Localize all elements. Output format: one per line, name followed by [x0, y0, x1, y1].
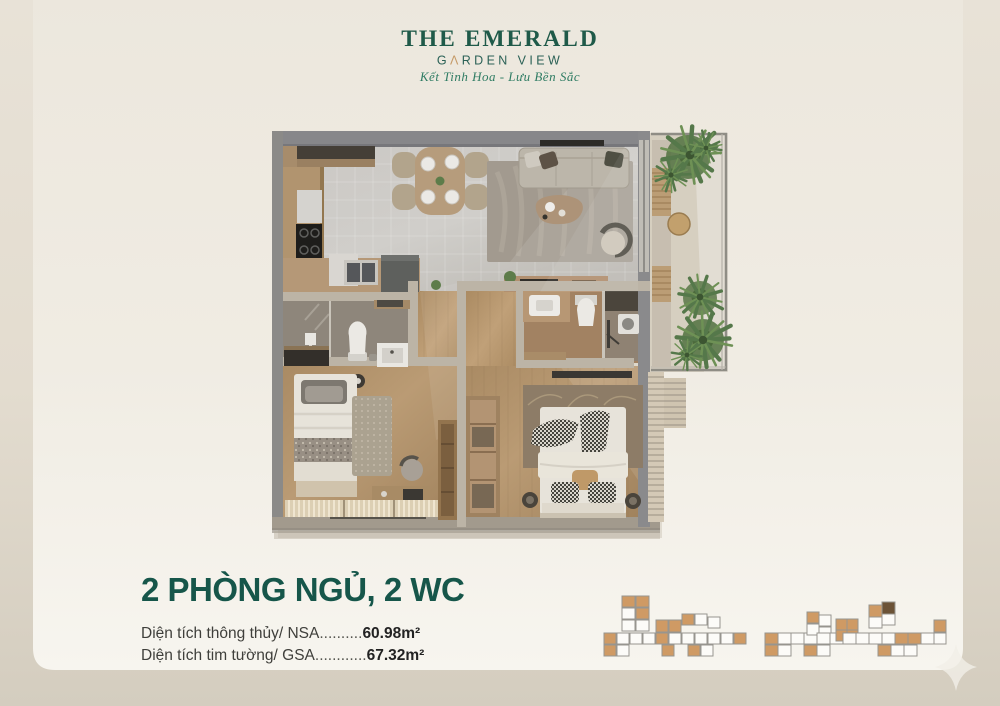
svg-text:Diện tích thông thủy/ NSA.....: Diện tích thông thủy/ NSA..........60.98… [141, 625, 420, 642]
svg-text:Diện tích tim tường/ GSA......: Diện tích tim tường/ GSA............67.3… [141, 647, 424, 664]
svg-text:THE EMERALD: THE EMERALD [401, 26, 599, 52]
svg-text:2 PHÒNG NGỦ, 2 WC: 2 PHÒNG NGỦ, 2 WC [141, 571, 464, 608]
svg-text:Kết Tinh Hoa - Lưu Bền Sắc: Kết Tinh Hoa - Lưu Bền Sắc [419, 69, 580, 84]
svg-text:GΛRDEN VIEW: GΛRDEN VIEW [437, 54, 563, 68]
